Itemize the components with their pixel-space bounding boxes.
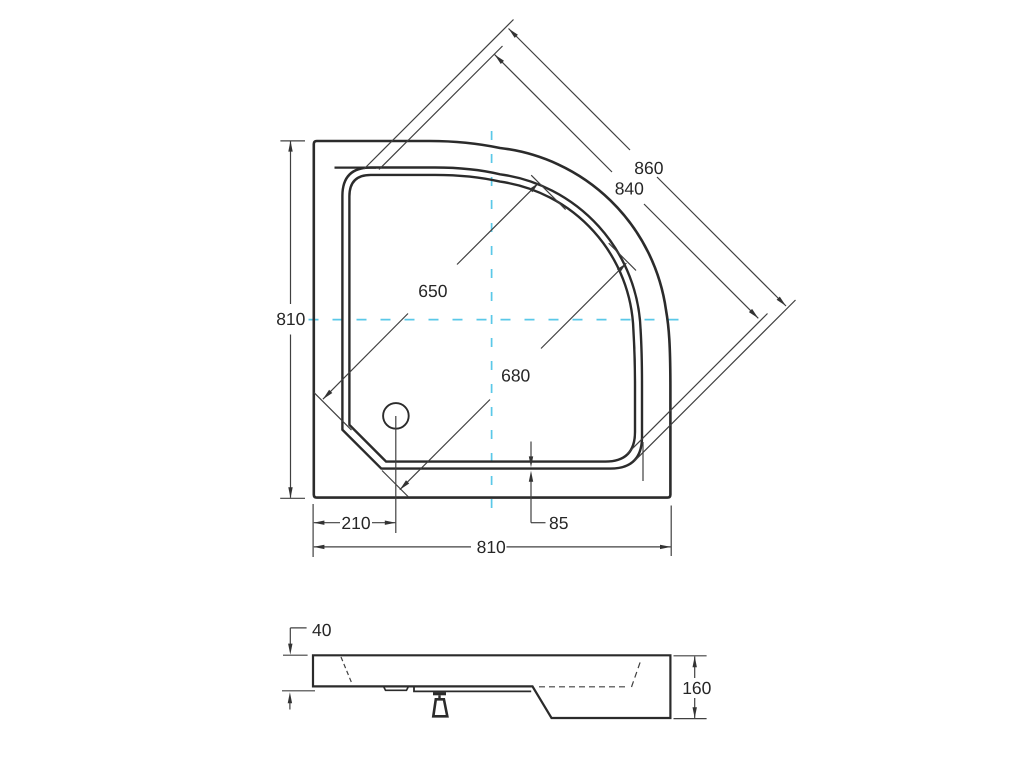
svg-text:680: 680 — [501, 365, 530, 385]
svg-text:840: 840 — [615, 179, 644, 199]
svg-text:40: 40 — [312, 620, 332, 640]
svg-text:810: 810 — [477, 537, 506, 557]
svg-text:650: 650 — [418, 281, 447, 301]
svg-text:810: 810 — [276, 309, 305, 329]
svg-text:160: 160 — [682, 678, 711, 698]
svg-text:210: 210 — [341, 513, 370, 533]
svg-text:860: 860 — [634, 158, 663, 178]
svg-text:85: 85 — [549, 513, 568, 533]
